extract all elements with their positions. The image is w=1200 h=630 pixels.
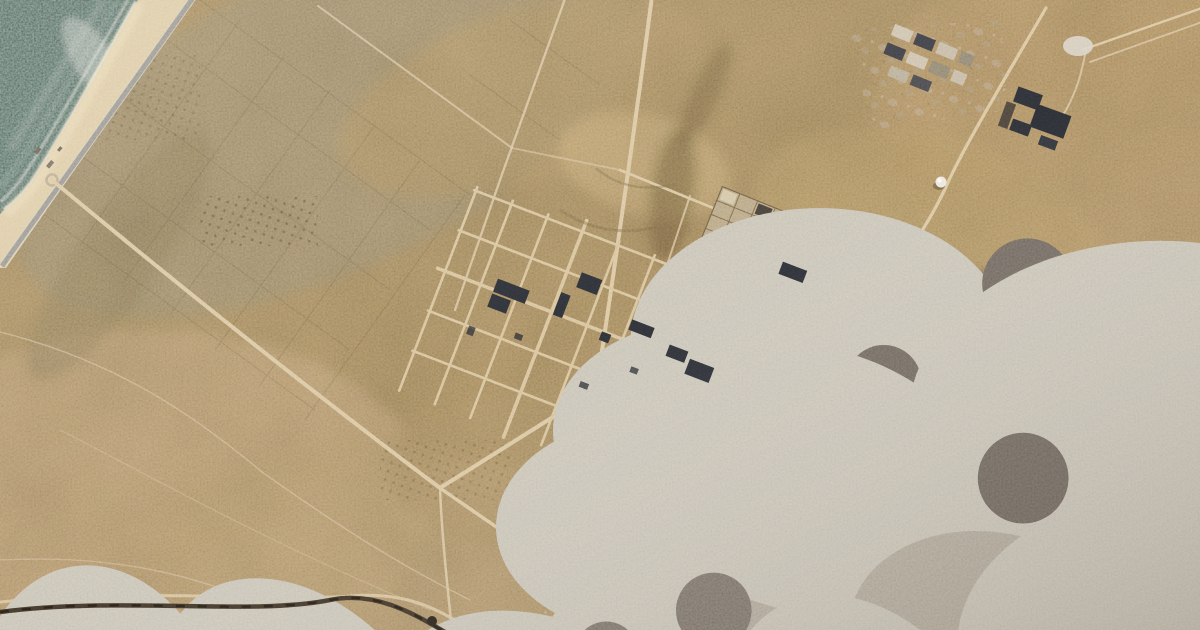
lighting-gradient [0,0,1200,630]
satellite-scene: Satellite view of a devastated coastal c… [0,0,1200,630]
satellite-image: Satellite view of a devastated coastal c… [0,0,1200,630]
